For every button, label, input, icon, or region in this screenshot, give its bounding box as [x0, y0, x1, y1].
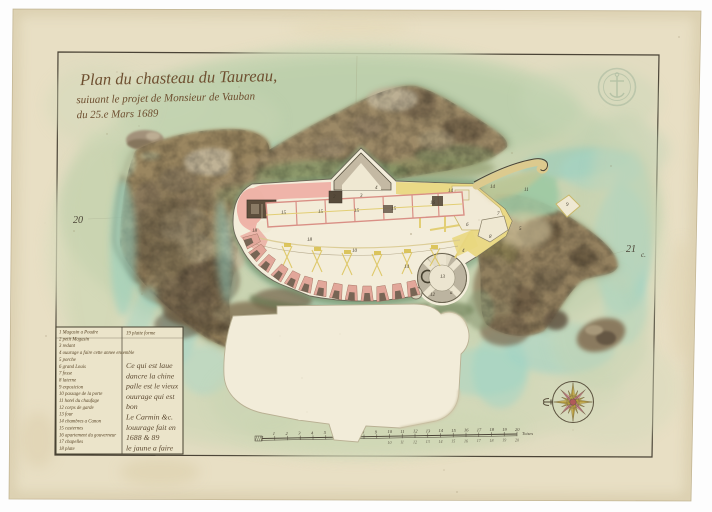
- svg-text:12 corps de garde: 12 corps de garde: [59, 406, 94, 411]
- svg-text:18: 18: [490, 438, 494, 443]
- svg-text:16: 16: [464, 438, 468, 443]
- svg-text:14: 14: [439, 428, 444, 433]
- svg-text:10 passage de la porte: 10 passage de la porte: [59, 392, 103, 397]
- svg-text:19 platte forme: 19 platte forme: [126, 332, 156, 337]
- svg-text:13 four: 13 four: [59, 413, 73, 418]
- svg-text:1: 1: [273, 431, 275, 436]
- svg-text:13: 13: [440, 275, 446, 280]
- svg-text:1 Magasin a Poudre: 1 Magasin a Poudre: [59, 331, 99, 336]
- svg-text:18: 18: [252, 229, 258, 234]
- svg-text:3 redant: 3 redant: [59, 344, 76, 349]
- svg-text:18: 18: [307, 238, 313, 243]
- svg-text:15: 15: [451, 439, 455, 444]
- svg-text:10: 10: [388, 429, 393, 434]
- svg-text:20: 20: [73, 215, 83, 226]
- svg-text:20: 20: [515, 438, 519, 443]
- svg-text:13: 13: [426, 439, 430, 444]
- svg-text:17: 17: [477, 428, 482, 433]
- svg-text:4 ouurage a faire cette anne: 4 ouurage a faire cette annee ensemble: [59, 351, 135, 356]
- svg-text:16: 16: [464, 428, 469, 433]
- svg-text:15: 15: [391, 207, 397, 212]
- svg-text:10: 10: [352, 249, 358, 254]
- svg-text:14: 14: [439, 439, 443, 444]
- svg-text:bon: bon: [126, 402, 138, 411]
- svg-text:19: 19: [502, 427, 507, 432]
- svg-text:12: 12: [413, 439, 417, 444]
- svg-text:18 plate: 18 plate: [59, 447, 75, 452]
- svg-text:18: 18: [490, 427, 495, 432]
- svg-text:14: 14: [404, 265, 410, 270]
- svg-text:15: 15: [318, 210, 324, 215]
- svg-text:20: 20: [515, 427, 520, 432]
- svg-text:8 laterne: 8 laterne: [59, 379, 77, 384]
- svg-text:15: 15: [281, 211, 287, 216]
- svg-text:15: 15: [354, 209, 360, 214]
- svg-text:11: 11: [400, 429, 404, 434]
- svg-text:6 grand Louis: 6 grand Louis: [59, 365, 86, 370]
- svg-text:16 apartement du gouverneur: 16 apartement du gouverneur: [59, 433, 116, 438]
- svg-text:Ce qui est laue: Ce qui est laue: [126, 361, 173, 370]
- svg-text:dancre la chine: dancre la chine: [126, 371, 175, 380]
- svg-text:le jaune a faire: le jaune a faire: [126, 443, 174, 452]
- svg-text:17 chapelles: 17 chapelles: [59, 440, 83, 445]
- svg-text:16: 16: [430, 201, 436, 206]
- svg-text:15: 15: [451, 428, 456, 433]
- svg-text:10: 10: [388, 440, 392, 445]
- svg-text:ouurage qui est: ouurage qui est: [126, 392, 175, 401]
- svg-text:5 porche: 5 porche: [59, 358, 77, 363]
- svg-text:12: 12: [413, 429, 418, 434]
- svg-text:14: 14: [490, 185, 496, 190]
- svg-text:palle est le vieux: palle est le vieux: [125, 382, 179, 391]
- svg-text:15 casternes: 15 casternes: [59, 426, 83, 431]
- svg-text:11: 11: [524, 188, 529, 193]
- svg-text:1688 & 89: 1688 & 89: [126, 433, 159, 442]
- svg-text:11 hotel du chaufage: 11 hotel du chaufage: [59, 399, 100, 404]
- svg-text:11: 11: [400, 440, 404, 445]
- svg-text:19: 19: [502, 438, 506, 443]
- svg-text:c.: c.: [641, 251, 646, 259]
- svg-text:21: 21: [626, 244, 636, 255]
- svg-text:14 chambres a Canon: 14 chambres a Canon: [59, 420, 102, 425]
- svg-text:13: 13: [426, 428, 431, 433]
- svg-text:14: 14: [448, 189, 454, 194]
- svg-text:louurage fait en: louurage fait en: [126, 423, 176, 432]
- svg-text:12: 12: [430, 293, 436, 298]
- svg-text:du 25.e Mars 1689: du 25.e Mars 1689: [77, 108, 159, 122]
- svg-text:2 petit Magasin: 2 petit Magasin: [59, 337, 90, 342]
- svg-text:Toises: Toises: [522, 431, 533, 436]
- svg-text:9 exposicion: 9 exposicion: [59, 385, 84, 390]
- svg-text:7 fosse: 7 fosse: [59, 372, 73, 377]
- svg-text:Le Carmin &c.: Le Carmin &c.: [125, 413, 173, 422]
